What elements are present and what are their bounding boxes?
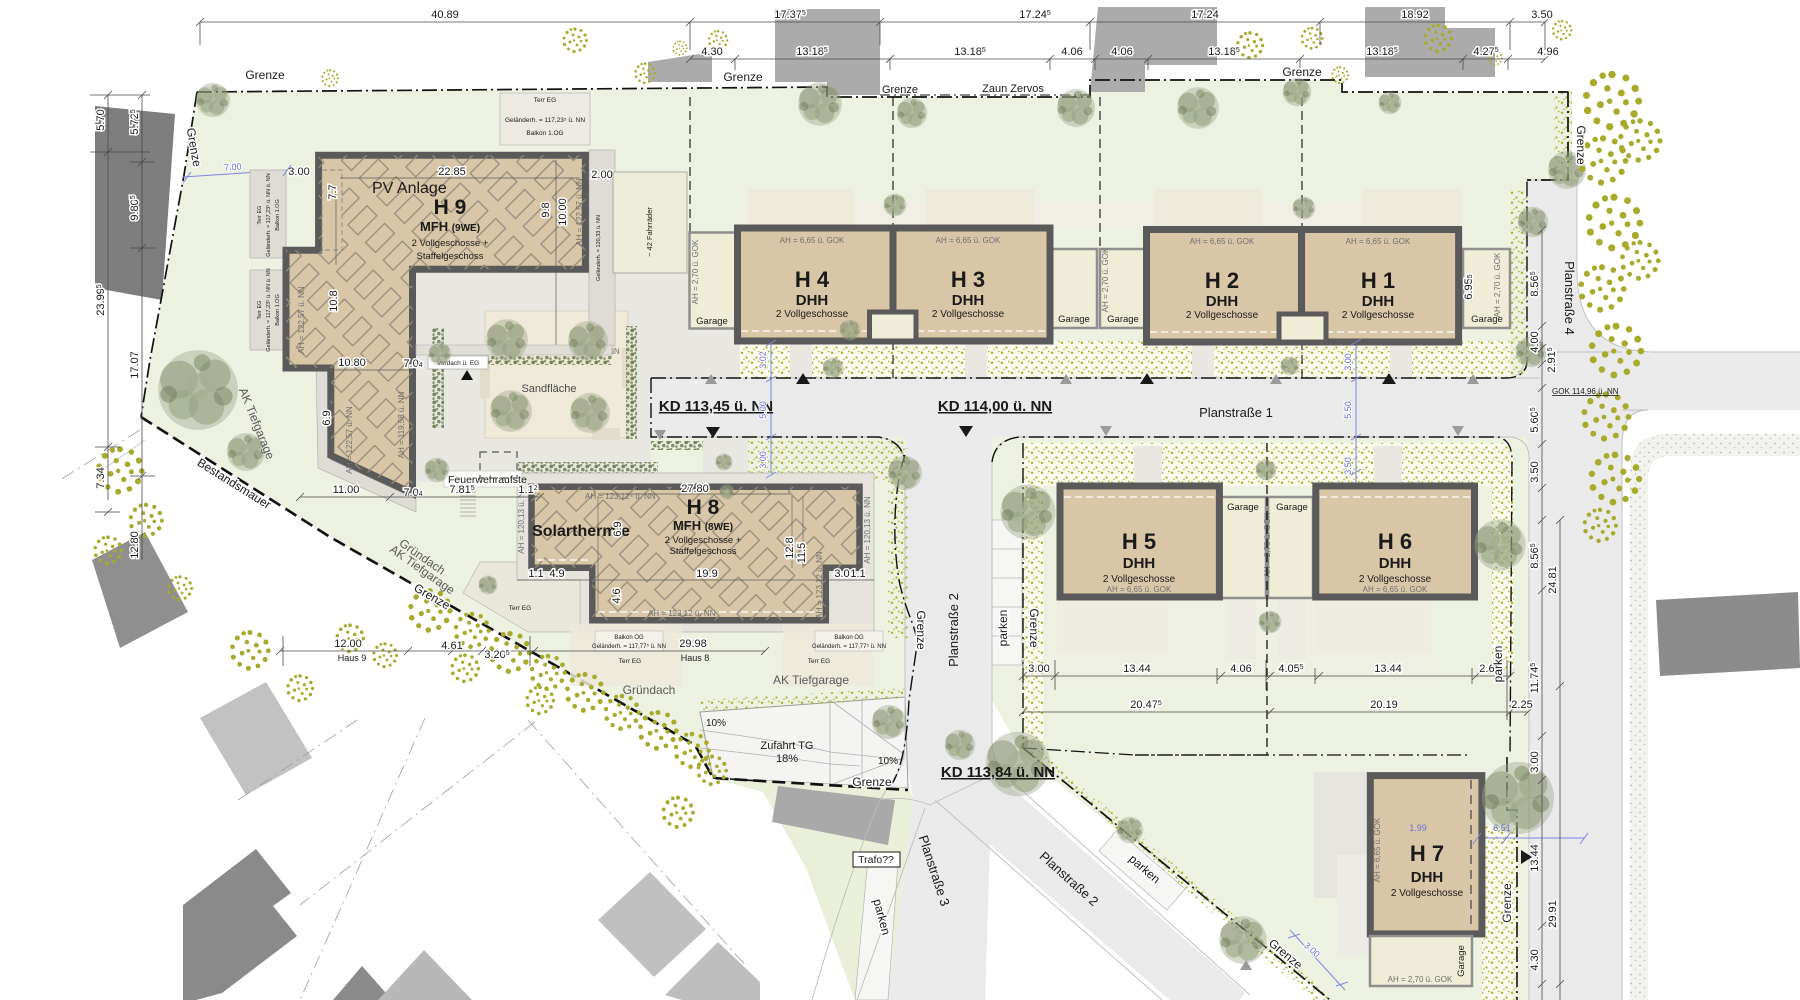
svg-text:AH = 6,65 ü. GOK: AH = 6,65 ü. GOK — [1190, 237, 1255, 246]
svg-text:H 6: H 6 — [1378, 529, 1412, 554]
svg-text:H 5: H 5 — [1122, 529, 1156, 554]
svg-text:Grenze: Grenze — [1500, 883, 1514, 923]
svg-text:2 Vollgeschosse: 2 Vollgeschosse — [932, 309, 1005, 320]
svg-text:10.80: 10.80 — [338, 357, 366, 369]
svg-text:22.85: 22.85 — [438, 166, 466, 178]
svg-text:Geländerh. = 120,33 ü. NN: Geländerh. = 120,33 ü. NN — [596, 215, 602, 281]
svg-text:Planstraße 1: Planstraße 1 — [1199, 405, 1273, 420]
svg-text:3.50: 3.50 — [1531, 9, 1552, 21]
svg-text:4.9: 4.9 — [549, 568, 564, 580]
svg-text:DHH: DHH — [1206, 293, 1239, 310]
svg-text:17.245: 17.245 — [1019, 9, 1051, 21]
svg-text:AH = 6,65 ü. GOK: AH = 6,65 ü. GOK — [1346, 237, 1411, 246]
svg-text:AH = 122,57 ü. NN: AH = 122,57 ü. NN — [575, 178, 584, 246]
svg-text:Grenze: Grenze — [914, 610, 928, 650]
svg-text:H 8: H 8 — [687, 496, 720, 519]
svg-text:2 Vollgeschosse +: 2 Vollgeschosse + — [412, 238, 489, 249]
svg-text:Garage: Garage — [1227, 502, 1259, 513]
svg-text:Planstraße 4: Planstraße 4 — [1562, 261, 1577, 335]
svg-text:Balkon 1.OG: Balkon 1.OG — [275, 199, 281, 231]
svg-text:DHH: DHH — [952, 292, 985, 309]
svg-text:5.00: 5.00 — [758, 401, 768, 419]
svg-text:DHH: DHH — [1362, 293, 1395, 310]
svg-text:24.81: 24.81 — [1547, 566, 1559, 594]
svg-text:29.98: 29.98 — [679, 638, 707, 650]
svg-text:Geländerh. = 117,77⁵ ü. NN: Geländerh. = 117,77⁵ ü. NN — [592, 643, 666, 650]
svg-text:10.8: 10.8 — [328, 290, 340, 311]
svg-text:2 Vollgeschosse: 2 Vollgeschosse — [1359, 574, 1432, 585]
svg-text:4.06: 4.06 — [1230, 663, 1251, 675]
svg-text:29.91: 29.91 — [1547, 900, 1559, 928]
svg-text:Geländerh. = 117,77⁵ ü. NN: Geländerh. = 117,77⁵ ü. NN — [812, 643, 886, 650]
svg-text:H 1: H 1 — [1361, 268, 1395, 293]
svg-text:Garage: Garage — [1107, 314, 1139, 325]
svg-text:Gründach: Gründach — [623, 683, 676, 697]
svg-text:2.25: 2.25 — [1511, 699, 1532, 711]
svg-text:17.07: 17.07 — [129, 351, 141, 379]
svg-text:GOK 114,96 ü. NN: GOK 114,96 ü. NN — [1552, 387, 1619, 396]
svg-text:parken: parken — [1491, 646, 1505, 683]
svg-text:DHH: DHH — [1411, 869, 1444, 886]
svg-text:6.9: 6.9 — [321, 410, 333, 425]
svg-text:Grenze: Grenze — [882, 84, 918, 96]
svg-text:Garage: Garage — [1276, 502, 1308, 513]
svg-text:10.00: 10.00 — [557, 198, 569, 226]
svg-text:AH = 2,70 ü. GOK: AH = 2,70 ü. GOK — [691, 239, 700, 304]
svg-text:13.44: 13.44 — [1529, 844, 1541, 872]
svg-text:Balkon 1.OG: Balkon 1.OG — [275, 294, 281, 326]
svg-text:2 Vollgeschosse: 2 Vollgeschosse — [1186, 310, 1259, 321]
svg-text:7.7: 7.7 — [327, 184, 339, 199]
svg-text:2 Vollgeschosse: 2 Vollgeschosse — [1103, 574, 1176, 585]
svg-text:13.185: 13.185 — [1208, 46, 1240, 58]
svg-text:Garage: Garage — [1058, 314, 1090, 325]
svg-text:Grenze: Grenze — [852, 775, 892, 789]
svg-text:PV Anlage: PV Anlage — [372, 180, 447, 197]
svg-text:Staffelgeschoss: Staffelgeschoss — [417, 251, 484, 262]
svg-text:DHH: DHH — [1123, 555, 1156, 572]
svg-text:19.9: 19.9 — [696, 568, 717, 580]
svg-text:AH = 6,65 ü. GOK: AH = 6,65 ü. GOK — [1363, 585, 1428, 594]
svg-text:6.9: 6.9 — [612, 521, 624, 536]
svg-text:6.51: 6.51 — [1493, 823, 1511, 833]
svg-text:10%: 10% — [706, 718, 726, 729]
svg-text:7.34: 7.34 — [95, 467, 107, 488]
svg-text:AH = 119,58 ü. NN: AH = 119,58 ü. NN — [397, 391, 406, 458]
svg-text:AH = 123,12⁵ ü. NN: AH = 123,12⁵ ü. NN — [585, 492, 656, 501]
svg-text:AH = 2,70 ü. GOK: AH = 2,70 ü. GOK — [1493, 252, 1502, 317]
svg-text:13.185: 13.185 — [796, 46, 828, 58]
svg-text:DHH: DHH — [1379, 555, 1412, 572]
svg-text:9.8: 9.8 — [540, 202, 552, 217]
svg-text:Geländerh. = 117,23⁵ ü. NN ü.: Geländerh. = 117,23⁵ ü. NN ü. NN — [265, 268, 272, 351]
svg-text:Haus 8: Haus 8 — [681, 653, 710, 663]
svg-text:~ 42 Fahrräder: ~ 42 Fahrräder — [645, 207, 654, 257]
svg-text:4.30: 4.30 — [1529, 949, 1541, 970]
svg-text:12.8: 12.8 — [784, 537, 796, 558]
svg-text:4.30: 4.30 — [701, 46, 722, 58]
svg-text:3.02: 3.02 — [758, 351, 768, 369]
svg-text:11.5: 11.5 — [796, 543, 808, 564]
svg-text:3.00: 3.00 — [1529, 751, 1541, 772]
svg-text:Terr EG: Terr EG — [257, 301, 263, 320]
svg-text:5.70: 5.70 — [95, 109, 107, 130]
svg-text:Grenze: Grenze — [723, 70, 763, 84]
svg-text:AH = 123,12 ü. NN: AH = 123,12 ü. NN — [815, 551, 824, 619]
svg-text:H 4: H 4 — [795, 267, 830, 292]
svg-text:AH = 120,13 ü. NN: AH = 120,13 ü. NN — [517, 486, 526, 554]
svg-text:AH = 122,57 ü. NN: AH = 122,57 ü. NN — [345, 406, 354, 474]
svg-text:2 Vollgeschosse: 2 Vollgeschosse — [776, 309, 849, 320]
svg-text:13.44: 13.44 — [1374, 663, 1402, 675]
svg-text:KD 113,84 ü. NN: KD 113,84 ü. NN — [941, 764, 1055, 781]
svg-text:Balkon OG: Balkon OG — [614, 635, 644, 641]
svg-text:Zufahrt TG: Zufahrt TG — [761, 740, 814, 752]
svg-text:2 Vollgeschosse: 2 Vollgeschosse — [1342, 310, 1415, 321]
svg-text:KD 113,45 ü. NN: KD 113,45 ü. NN — [659, 398, 773, 415]
svg-text:3.0: 3.0 — [834, 568, 849, 580]
svg-text:20.19: 20.19 — [1370, 699, 1398, 711]
svg-text:18.92: 18.92 — [1401, 9, 1429, 21]
svg-text:H 9: H 9 — [434, 196, 467, 219]
svg-text:Trafo??: Trafo?? — [858, 854, 894, 866]
svg-text:11.745: 11.745 — [1529, 663, 1541, 694]
svg-text:3.00: 3.00 — [1028, 663, 1049, 675]
svg-text:AH = 6,65 ü. GOK: AH = 6,65 ü. GOK — [936, 236, 1001, 245]
svg-text:Terr EG: Terr EG — [534, 97, 556, 104]
svg-text:20.475: 20.475 — [1130, 699, 1162, 711]
svg-text:3.00: 3.00 — [758, 451, 768, 469]
svg-text:13.185: 13.185 — [954, 46, 986, 58]
svg-text:4.61: 4.61 — [441, 640, 462, 652]
svg-text:AH = 122,57 ü. NN: AH = 122,57 ü. NN — [297, 286, 306, 354]
svg-text:1.99: 1.99 — [1409, 823, 1427, 833]
svg-text:2 Vollgeschosse: 2 Vollgeschosse — [1391, 888, 1464, 899]
svg-text:13.44: 13.44 — [1123, 663, 1151, 675]
svg-text:Planstraße 2: Planstraße 2 — [946, 593, 961, 667]
svg-text:Terr EG: Terr EG — [509, 605, 531, 612]
svg-text:17.375: 17.375 — [774, 9, 806, 21]
svg-text:Grenze: Grenze — [1282, 65, 1322, 79]
svg-text:H 7: H 7 — [1410, 841, 1444, 866]
svg-text:4.06: 4.06 — [1061, 46, 1082, 58]
svg-text:Geländerh. = 117,23⁵ ü. NN ü.: Geländerh. = 117,23⁵ ü. NN ü. NN — [265, 173, 272, 256]
svg-text:DHH: DHH — [796, 292, 829, 309]
svg-text:13.185: 13.185 — [1366, 46, 1398, 58]
svg-text:2.00: 2.00 — [591, 169, 612, 181]
svg-text:H 2: H 2 — [1205, 268, 1239, 293]
svg-text:H 3: H 3 — [951, 267, 985, 292]
svg-text:1.1: 1.1 — [850, 568, 865, 580]
svg-text:2 Vollgeschosse +: 2 Vollgeschosse + — [665, 535, 742, 546]
svg-text:12.80: 12.80 — [129, 531, 141, 559]
svg-text:Grenze: Grenze — [1027, 608, 1041, 648]
svg-text:AH = 6,65 ü. GOK: AH = 6,65 ü. GOK — [780, 236, 845, 245]
svg-text:27.80: 27.80 — [681, 483, 709, 495]
svg-text:4.96: 4.96 — [1537, 46, 1558, 58]
svg-text:AH = 6,65 ü. GOK: AH = 6,65 ü. GOK — [1107, 585, 1172, 594]
svg-text:7.00: 7.00 — [224, 161, 242, 172]
svg-text:10%: 10% — [878, 756, 898, 767]
svg-text:AH = 120,13 ü. NN: AH = 120,13 ü. NN — [863, 496, 872, 564]
svg-text:18%: 18% — [776, 753, 798, 765]
svg-text:5.50: 5.50 — [1343, 401, 1353, 419]
svg-text:Terr EG: Terr EG — [619, 658, 641, 665]
svg-text:11.00: 11.00 — [333, 484, 360, 496]
svg-text:Terr EG: Terr EG — [257, 206, 263, 225]
svg-text:Staffelgeschoss: Staffelgeschoss — [670, 546, 737, 557]
svg-text:KD 114,00 ü. NN: KD 114,00 ü. NN — [938, 398, 1052, 415]
svg-text:Grenze: Grenze — [245, 68, 285, 82]
svg-text:3.50: 3.50 — [1343, 457, 1353, 475]
svg-text:AH = 6,65 ü. GOK: AH = 6,65 ü. GOK — [1373, 817, 1382, 882]
svg-text:Geländerh. = 117,23⁵ ü. NN: Geländerh. = 117,23⁵ ü. NN — [505, 117, 585, 124]
svg-text:1.1: 1.1 — [528, 568, 543, 580]
svg-text:4.06: 4.06 — [1111, 46, 1132, 58]
svg-text:AH = 2,70 ü. GOK: AH = 2,70 ü. GOK — [1101, 247, 1110, 312]
svg-text:Grenze: Grenze — [1574, 125, 1588, 165]
svg-text:12.00: 12.00 — [334, 638, 362, 650]
svg-text:3.50: 3.50 — [1529, 461, 1541, 482]
svg-text:4.6: 4.6 — [611, 588, 623, 603]
svg-text:Zaun Zervos: Zaun Zervos — [982, 83, 1044, 95]
svg-text:Terr EG: Terr EG — [808, 658, 830, 665]
svg-text:4.00: 4.00 — [1529, 331, 1541, 352]
svg-text:23.995: 23.995 — [95, 284, 107, 316]
svg-text:AH = 123,12 ü. NN: AH = 123,12 ü. NN — [648, 609, 716, 618]
svg-text:40.89: 40.89 — [431, 9, 459, 21]
svg-text:17.24: 17.24 — [1191, 9, 1219, 21]
svg-text:AH = 2,70 ü. GOK: AH = 2,70 ü. GOK — [1388, 975, 1453, 984]
svg-text:Garage: Garage — [696, 316, 728, 327]
svg-text:AK Tiefgarage: AK Tiefgarage — [773, 673, 849, 687]
svg-text:3.00: 3.00 — [1343, 353, 1353, 371]
svg-text:Balkon 1.OG: Balkon 1.OG — [526, 130, 563, 137]
svg-text:Sandfläche: Sandfläche — [521, 383, 576, 395]
svg-text:parken: parken — [996, 610, 1010, 647]
svg-text:3.00: 3.00 — [288, 166, 309, 178]
svg-text:Balkon OG: Balkon OG — [834, 635, 864, 641]
svg-text:Haus 9: Haus 9 — [338, 653, 367, 663]
svg-text:Garage: Garage — [1456, 945, 1467, 977]
